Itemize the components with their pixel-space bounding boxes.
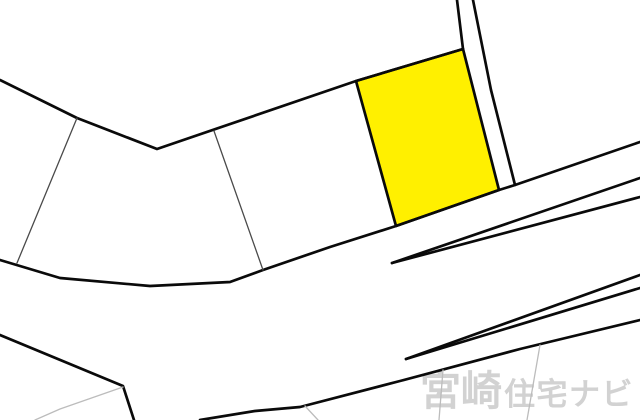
faint-parcel-line-se-2: [527, 345, 540, 420]
road-upper-edge: [0, 142, 640, 286]
boundary-lower-left: [0, 335, 134, 420]
faint-parcel-line-se-1: [439, 370, 443, 420]
faint-parcel-line-south: [305, 406, 318, 420]
parcel-line-center: [214, 131, 263, 270]
parcel-map: 宮崎 住宅ナビ: [0, 0, 640, 420]
road-lower-wedge-upper: [406, 275, 640, 359]
strip-left-line: [457, 0, 463, 49]
faint-parcel-line-sw: [35, 387, 123, 420]
parcel-map-canvas: [0, 0, 640, 420]
parcel-line-left: [17, 118, 77, 263]
road-lower-edge: [200, 320, 640, 420]
